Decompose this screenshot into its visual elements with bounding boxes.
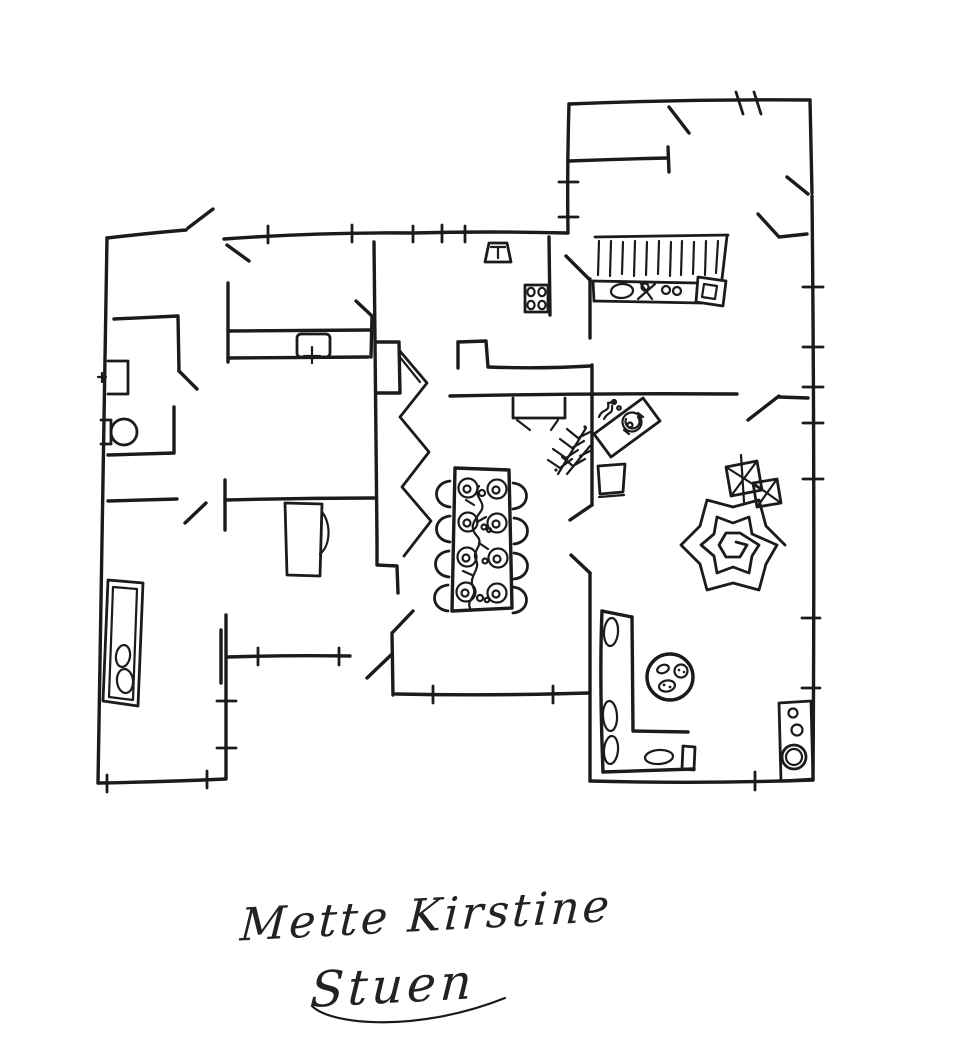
stove bbox=[525, 285, 548, 312]
counter-end-block bbox=[696, 277, 726, 306]
walls bbox=[98, 100, 814, 783]
desk-chair bbox=[623, 413, 644, 435]
counter-burners bbox=[662, 286, 681, 295]
bed bbox=[103, 580, 143, 706]
wall-niche bbox=[513, 398, 565, 430]
potted-plant bbox=[548, 425, 594, 474]
plant-pot bbox=[598, 464, 625, 497]
desk bbox=[594, 398, 660, 457]
rug bbox=[681, 500, 785, 590]
stools bbox=[726, 455, 781, 507]
kitchen-counter bbox=[593, 235, 728, 306]
washbasin bbox=[98, 361, 128, 394]
caption: Mette Kirstine Stuen bbox=[235, 873, 721, 1023]
staircase bbox=[399, 350, 431, 556]
counter-sink bbox=[611, 283, 655, 299]
stereo-cabinet bbox=[779, 701, 813, 781]
small-sink-unit bbox=[485, 243, 511, 262]
coffee-table bbox=[647, 654, 693, 700]
toilet bbox=[101, 419, 137, 445]
place-settings bbox=[457, 479, 508, 603]
dining-set bbox=[435, 468, 528, 613]
window-ticks bbox=[107, 92, 823, 792]
corner-sofa bbox=[601, 611, 695, 772]
wardrobe-closet bbox=[285, 503, 329, 576]
floor-plan-page: Mette Kirstine Stuen bbox=[0, 0, 960, 1061]
